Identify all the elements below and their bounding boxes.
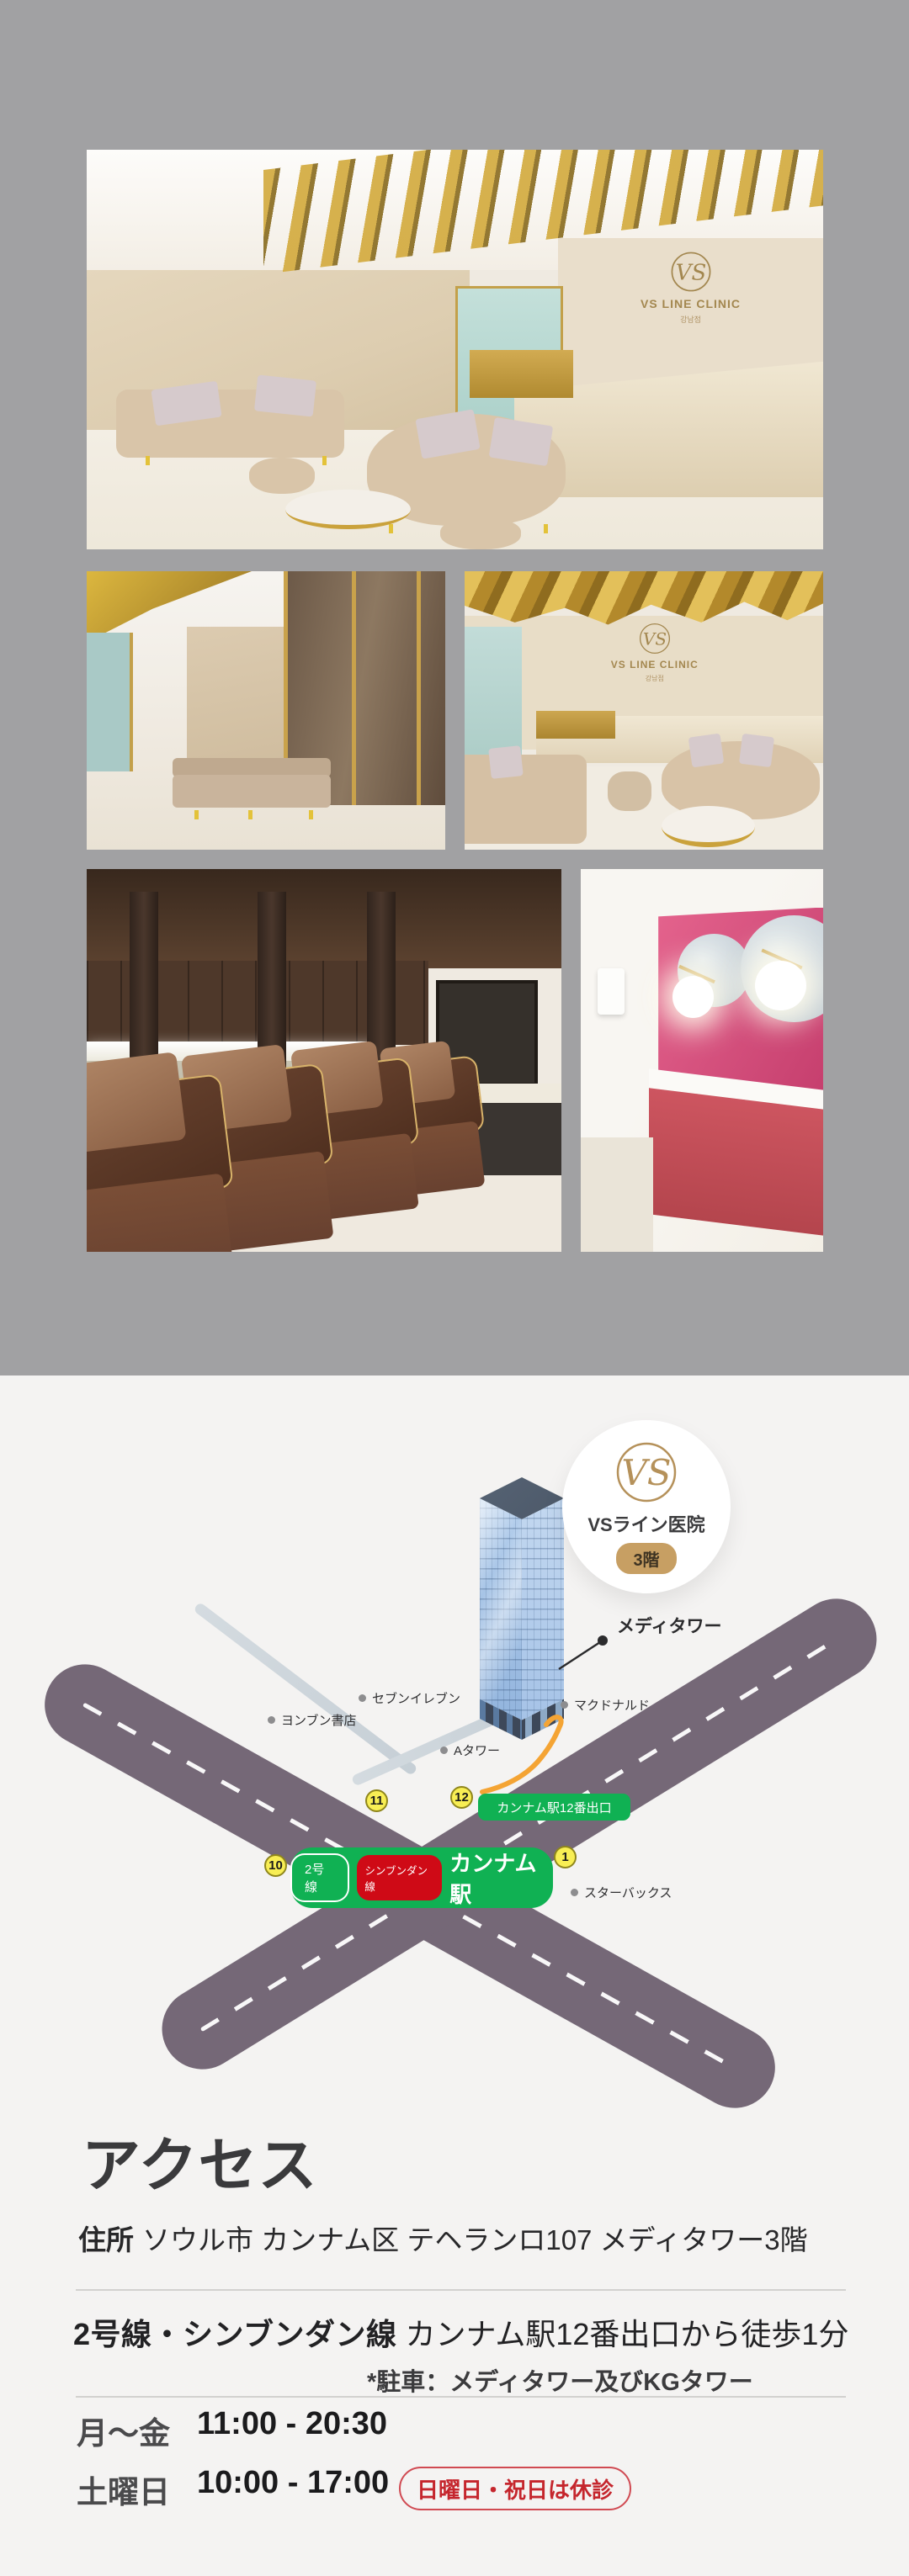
exit-12: 12 [450,1786,473,1809]
photo-lobby-main: VS VS LINE CLINIC 강남점 [87,150,823,549]
wall-brand-subtext: 강남점 [646,674,664,683]
photo-reception: VS VS LINE CLINIC 강남점 [465,571,823,850]
exit-10: 10 [264,1854,287,1877]
tower-label: メディタワー [617,1613,722,1638]
treatment-bed [87,1073,240,1252]
glass-wall [87,633,133,772]
landmark-dot [440,1746,448,1754]
landmark-bookstore: ヨンブン書店 [268,1711,357,1729]
line2-pill: 2号線 [290,1853,349,1902]
landmark-mcdonalds: マクドナルド [561,1696,650,1714]
hours-weekday-time: 11:00 - 20:30 [197,2406,387,2442]
photo-corridor [87,571,445,850]
wood-ceiling [87,869,561,968]
hours-saturday-time: 10:00 - 17:00 [197,2465,389,2501]
parking-note: *駐車：メディタワー及びKGタワー [367,2362,753,2398]
red-cabinets [649,1088,823,1236]
address-row: 住所 ソウル市 カンナム区 テヘランロ107 メディタワー3階 [78,2218,808,2258]
callout-line [559,1640,603,1669]
landmark-dot [268,1716,275,1724]
address-text: ソウル市 カンナム区 テヘランロ107 メディタワー3階 [142,2218,808,2258]
gold-leg [544,524,548,533]
landmark-a-tower: Aタワー [440,1741,500,1759]
landmark-dot [359,1694,366,1702]
gold-leg [309,810,313,819]
bench [173,775,330,808]
landmark-text: マクドナルド [574,1696,650,1714]
pillow [688,734,725,768]
pillow [254,374,316,416]
photo-treatment-room [87,869,561,1252]
route-text: カンナム駅12番出口から徒歩1分 [405,2317,848,2351]
clinic-badge-floor: 3階 [616,1543,676,1574]
vs-ring-icon: VS [638,622,672,655]
stool [249,458,316,494]
sconce-globe [755,961,805,1010]
shinbundang-pill: シンブンダン線 [357,1855,442,1900]
exit-number: 12 [454,1790,469,1805]
address-label: 住所 [78,2218,134,2258]
gold-leg [146,456,150,465]
exit-number: 11 [370,1794,384,1808]
gold-leg [322,456,327,465]
closed-days-badge: 日曜日・祝日は休診 [399,2467,631,2510]
gold-leg [248,810,252,819]
clinic-badge: VS VSライン医院 3階 [562,1420,731,1593]
coffee-table [662,806,755,847]
hours-weekday-label: 月〜金 [77,2408,170,2453]
landmark-seven-eleven: セブンイレブン [359,1689,460,1707]
gold-desk-panel [536,711,615,739]
exit-12-badge: カンナム駅12番出口 [478,1794,630,1821]
route-row: 2号線・シンブンダン線 カンナム駅12番出口から徒歩1分 [73,2310,848,2354]
route-lines: 2号線・シンブンダン線 [73,2317,396,2351]
svg-text:VS: VS [643,628,667,649]
gold-frame [417,571,421,805]
gold-leg [194,810,199,819]
landmark-text: スターバックス [584,1884,672,1901]
dispenser [598,968,625,1015]
exit-11: 11 [365,1789,388,1812]
pillow [739,734,774,768]
exit-1: 1 [554,1846,577,1868]
gold-desk-panel [470,350,573,398]
exit-number: 1 [561,1850,568,1864]
callout-dot [598,1635,608,1646]
gold-leg [389,524,393,533]
landmark-text: ヨンブン書店 [281,1711,357,1729]
gangnam-station-badge: 2号線 シンブンダン線 カンナム駅 [290,1847,553,1908]
landmark-text: Aタワー [454,1741,500,1759]
station-name: カンナム駅 [449,1847,553,1909]
photo-powder-room [581,869,823,1252]
marble-column [187,627,284,771]
svg-text:VS: VS [675,260,706,285]
clinic-badge-name: VSライン医院 [587,1510,704,1537]
exit-number: 10 [268,1858,283,1873]
page: VS VS LINE CLINIC 강남점 [0,0,909,2576]
stool [608,771,651,810]
wall-brand-subtext: 강남점 [680,314,701,325]
wall-logo: VS VS LINE CLINIC 강남점 [587,622,723,683]
wall-logo: VS VS LINE CLINIC 강남점 [573,250,809,325]
divider [76,2396,846,2398]
vs-ring-icon: VS [614,1440,678,1504]
sofa [465,755,587,844]
landmark-dot [571,1889,578,1896]
gold-frame [352,571,356,805]
floor [581,1137,653,1253]
vs-initials: VS [621,1452,671,1493]
landmark-starbucks: スターバックス [571,1884,672,1901]
wall-brand-text: VS LINE CLINIC [641,297,741,310]
landmark-text: セブンイレブン [372,1689,460,1707]
landmark-dot [561,1701,568,1709]
wall-brand-text: VS LINE CLINIC [611,659,699,671]
pillow [488,745,524,779]
vs-ring-icon: VS [669,250,713,294]
divider [76,2289,846,2291]
stool [440,517,521,549]
hours-saturday-label: 土曜日 [77,2467,170,2512]
